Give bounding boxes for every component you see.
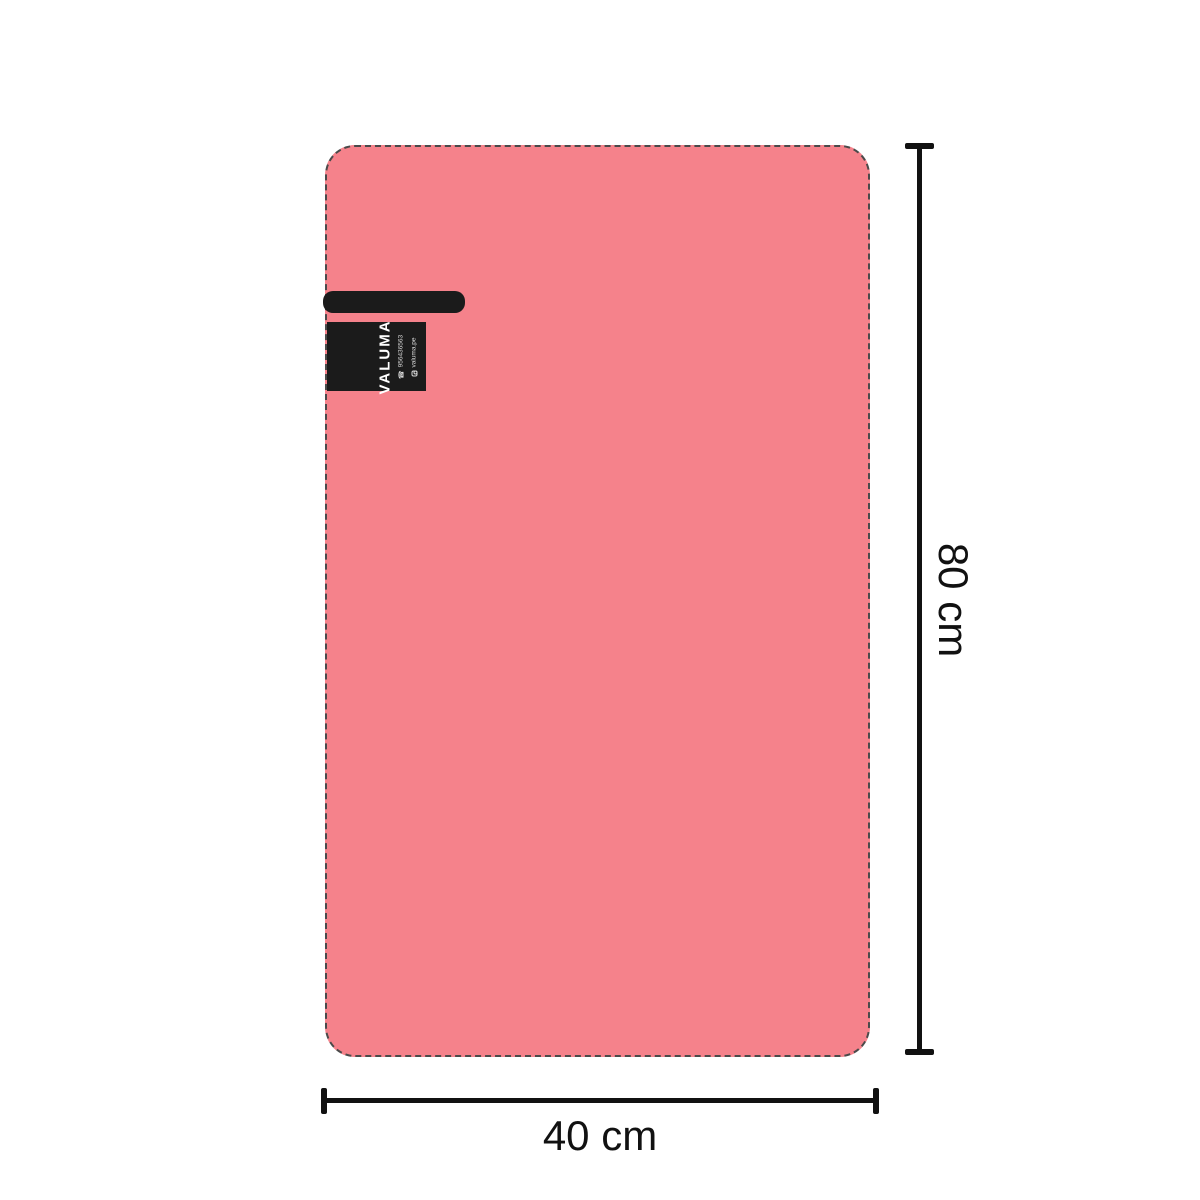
width-dimension-line: [323, 1098, 877, 1103]
blanket-shape: [325, 145, 870, 1057]
width-dimension-label: 40 cm: [323, 1115, 877, 1157]
brand-tag: VALUMA ☎ 956436563 valuma.pe: [327, 322, 426, 391]
tag-phone-line: ☎ 956436563: [398, 334, 405, 378]
height-dimension-label: 80 cm: [903, 550, 1003, 650]
tag-instagram-handle: valuma.pe: [411, 337, 418, 367]
phone-icon: ☎: [398, 370, 405, 379]
tag-strap: [323, 291, 465, 313]
brand-name: VALUMA: [377, 319, 392, 394]
width-dimension-cap-right: [873, 1088, 879, 1114]
width-dimension-cap-left: [321, 1088, 327, 1114]
brand-tag-content: VALUMA ☎ 956436563 valuma.pe: [327, 322, 426, 391]
height-dimension-cap-top: [905, 143, 934, 149]
product-dimension-diagram: VALUMA ☎ 956436563 valuma.pe 80 cm 40 cm: [0, 0, 1200, 1200]
height-dimension-cap-bottom: [905, 1049, 934, 1055]
tag-phone-number: 956436563: [398, 334, 405, 367]
instagram-icon: [411, 370, 417, 376]
tag-instagram-line: valuma.pe: [411, 337, 418, 376]
